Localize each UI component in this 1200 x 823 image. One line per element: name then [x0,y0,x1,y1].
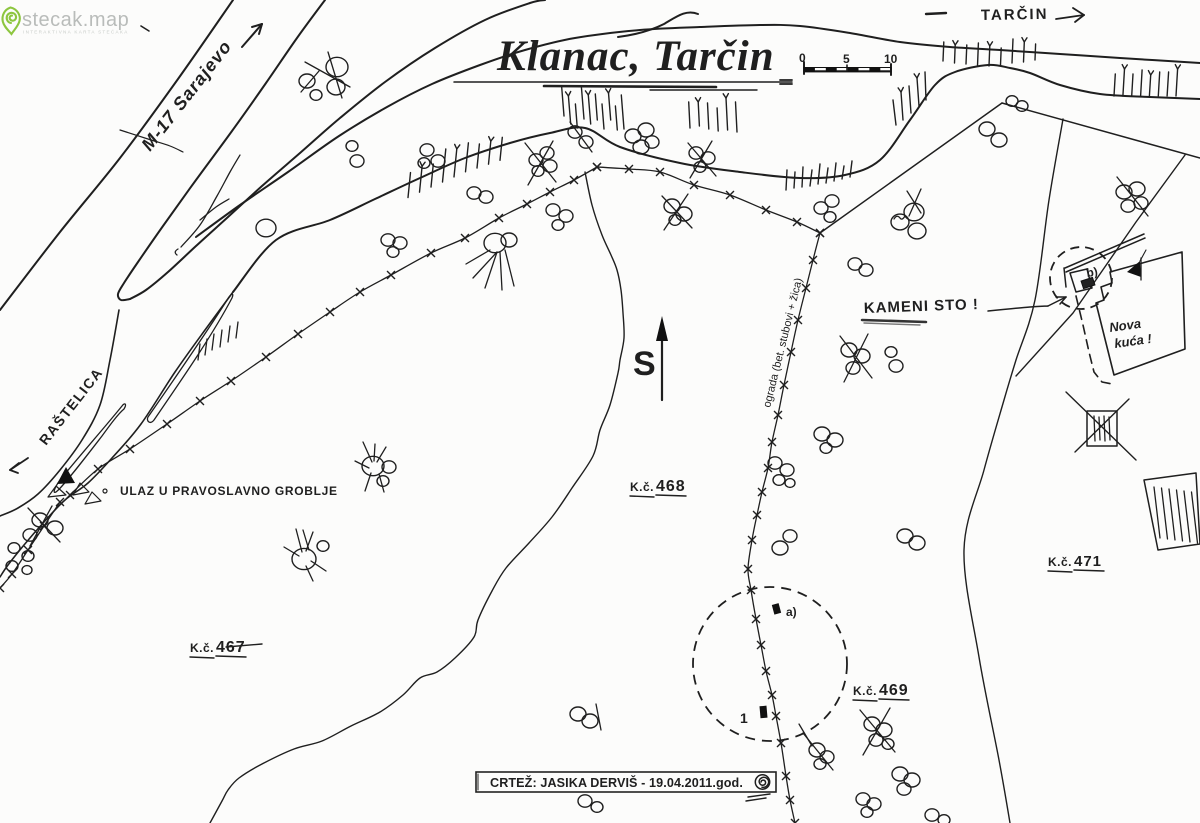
svg-text:INTERAKTIVNA KARTA STEĆAKA: INTERAKTIVNA KARTA STEĆAKA [23,29,129,35]
svg-text:K.č.: K.č. [1048,555,1072,569]
svg-text:1: 1 [740,710,748,726]
svg-text:TARČIN: TARČIN [981,5,1049,24]
svg-text:stecak.map: stecak.map [22,9,129,31]
svg-text:467: 467 [216,639,246,656]
svg-text:471: 471 [1074,553,1102,570]
svg-text:K.č.: K.č. [853,684,877,698]
svg-text:K.č.: K.č. [630,480,654,494]
svg-text:469: 469 [879,682,909,699]
svg-text:S: S [633,345,656,383]
svg-text:5: 5 [843,52,850,66]
svg-text:a): a) [786,605,797,619]
svg-text:468: 468 [656,478,686,495]
svg-text:Klanac, Tarčin: Klanac, Tarčin [496,33,775,80]
svg-text:b): b) [1085,265,1098,280]
svg-text:CRTEŽ: JASIKA DERVIŠ - 19.04.2: CRTEŽ: JASIKA DERVIŠ - 19.04.2011.god. [490,775,743,790]
svg-text:ULAZ U PRAVOSLAVNO GROBLJE: ULAZ U PRAVOSLAVNO GROBLJE [120,484,338,498]
svg-text:K.č.: K.č. [190,641,214,655]
